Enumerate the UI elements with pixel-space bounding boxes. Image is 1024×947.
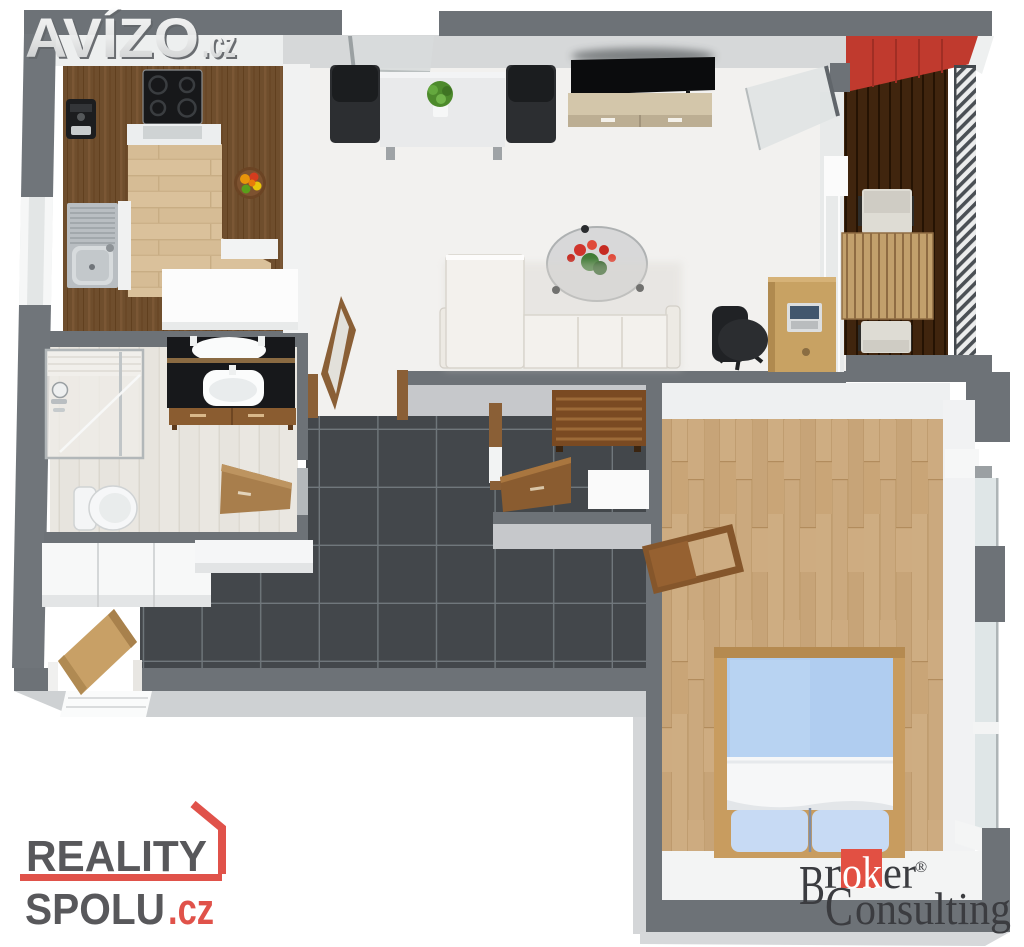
svg-text:.cz: .cz [168, 885, 214, 934]
svg-text:.cz: .cz [202, 22, 236, 66]
svg-text:C: C [825, 876, 853, 938]
svg-text:®: ® [915, 859, 927, 876]
svg-text:B: B [799, 855, 825, 917]
svg-text:onsulting: onsulting [855, 883, 1011, 934]
svg-text:REALITY: REALITY [26, 832, 207, 881]
svg-text:AVÍZO: AVÍZO [25, 6, 199, 69]
svg-text:SPOLU: SPOLU [25, 885, 165, 934]
